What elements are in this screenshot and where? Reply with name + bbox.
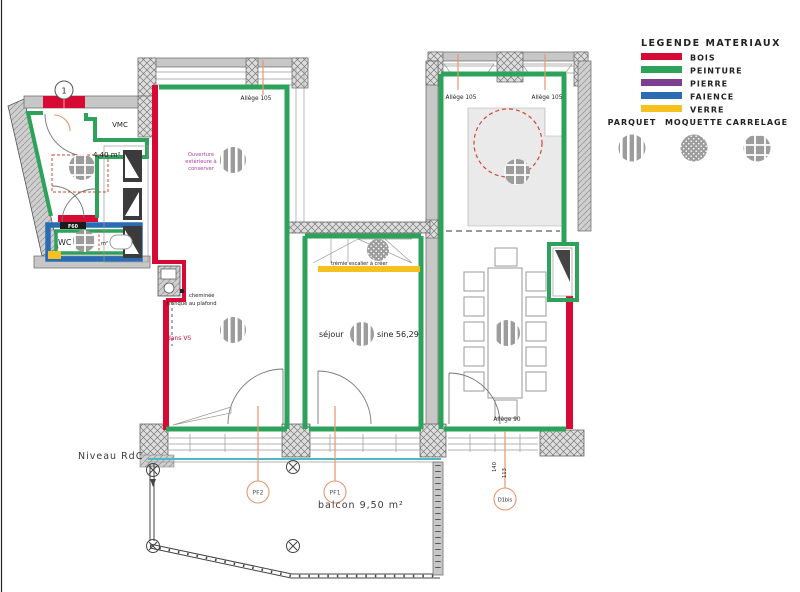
f60-label: F60 <box>68 224 79 230</box>
swatch-faience <box>641 92 682 99</box>
marker-pf1: PF1 <box>324 406 346 503</box>
tremie-note: trémie escalier à créer <box>331 260 388 267</box>
legend-label-moquette: MOQUETTE <box>665 118 723 127</box>
legend-carrelage-symbol <box>744 135 771 162</box>
allege-entree-label: Allège 105 <box>241 95 272 102</box>
dim-140-label: 140 <box>492 462 498 472</box>
allege-right-b-label: Allège 105 <box>532 94 563 101</box>
parquet-symbol <box>220 317 246 343</box>
vmc-label: VMC <box>112 121 128 129</box>
level-label: Niveau RdC <box>78 451 143 462</box>
swatch-pierre <box>641 79 682 86</box>
balcony <box>146 459 443 578</box>
parquet-symbol <box>494 320 520 346</box>
parquet-symbol <box>220 147 246 173</box>
carrelage-symbol <box>69 154 95 180</box>
floor-plan-sheet: 1 PF2 PF1 D1bis VMC 4,40 m² Ouverture ex… <box>0 0 800 592</box>
wc-area-label: m² <box>101 241 108 247</box>
ouverture-note-line1: Ouverture <box>188 152 214 158</box>
legend-label-faience: FAIENCE <box>690 93 734 102</box>
d1bis-label: D1bis <box>498 498 513 504</box>
carrelage-symbol <box>73 230 95 252</box>
moquette-symbol <box>367 239 389 261</box>
pf2-label: PF2 <box>252 490 263 497</box>
floor-plan-drawing: 1 PF2 PF1 D1bis VMC 4,40 m² Ouverture ex… <box>0 0 800 592</box>
legend-label-verre: VERRE <box>690 106 724 115</box>
legend-title: LEGENDE MATERIAUX <box>641 38 781 49</box>
marker-pf2: PF2 <box>247 406 269 503</box>
carrelage-symbol <box>504 159 530 185</box>
swatch-peinture <box>641 66 682 73</box>
allege-90-label: Allège 90 <box>493 416 521 423</box>
ouverture-note-line2: extérieure à <box>185 158 217 165</box>
legend-moquette-symbol <box>681 135 708 162</box>
east-niche-window <box>553 248 572 296</box>
legend-label-carrelage: CARRELAGE <box>726 118 788 127</box>
balcony-doors <box>173 369 500 425</box>
legend: LEGENDE MATERIAUX BOIS PEINTURE PIERRE F… <box>608 38 788 162</box>
cheminee-note-line2: tronqué au plafond <box>167 300 217 307</box>
pf1-label: PF1 <box>329 490 340 497</box>
ouverture-note-line3: conserver <box>188 166 215 172</box>
legend-label-parquet: PARQUET <box>608 118 657 127</box>
drain-symbol <box>287 540 300 553</box>
dim-113-label: 113 <box>502 468 508 478</box>
legend-label-bois: BOIS <box>690 54 716 63</box>
wc-label: WC <box>58 238 72 247</box>
allege-right-a-label: Allège 105 <box>446 94 477 101</box>
parquet-symbol <box>350 322 374 346</box>
legend-label-peinture: PEINTURE <box>690 67 743 76</box>
swatch-verre <box>641 105 682 112</box>
sejour-label: séjour <box>319 329 344 339</box>
swatch-bois <box>641 53 682 60</box>
cheminee-note-line1: cheminée <box>189 292 215 299</box>
stair-tremie-sketch <box>313 239 412 263</box>
legend-parquet-symbol <box>619 135 646 162</box>
facade-window-band <box>168 434 538 452</box>
legend-label-pierre: PIERRE <box>690 80 728 89</box>
balcon-label: balcon 9,50 m² <box>318 500 404 511</box>
entree-area-label: 4,40 m² <box>93 151 121 159</box>
sejour-area-label: sine 56,29 <box>377 330 419 339</box>
drain-symbol <box>287 461 300 474</box>
marker-1-label: 1 <box>61 87 66 96</box>
dans-vs-note: dans VS <box>167 335 191 342</box>
